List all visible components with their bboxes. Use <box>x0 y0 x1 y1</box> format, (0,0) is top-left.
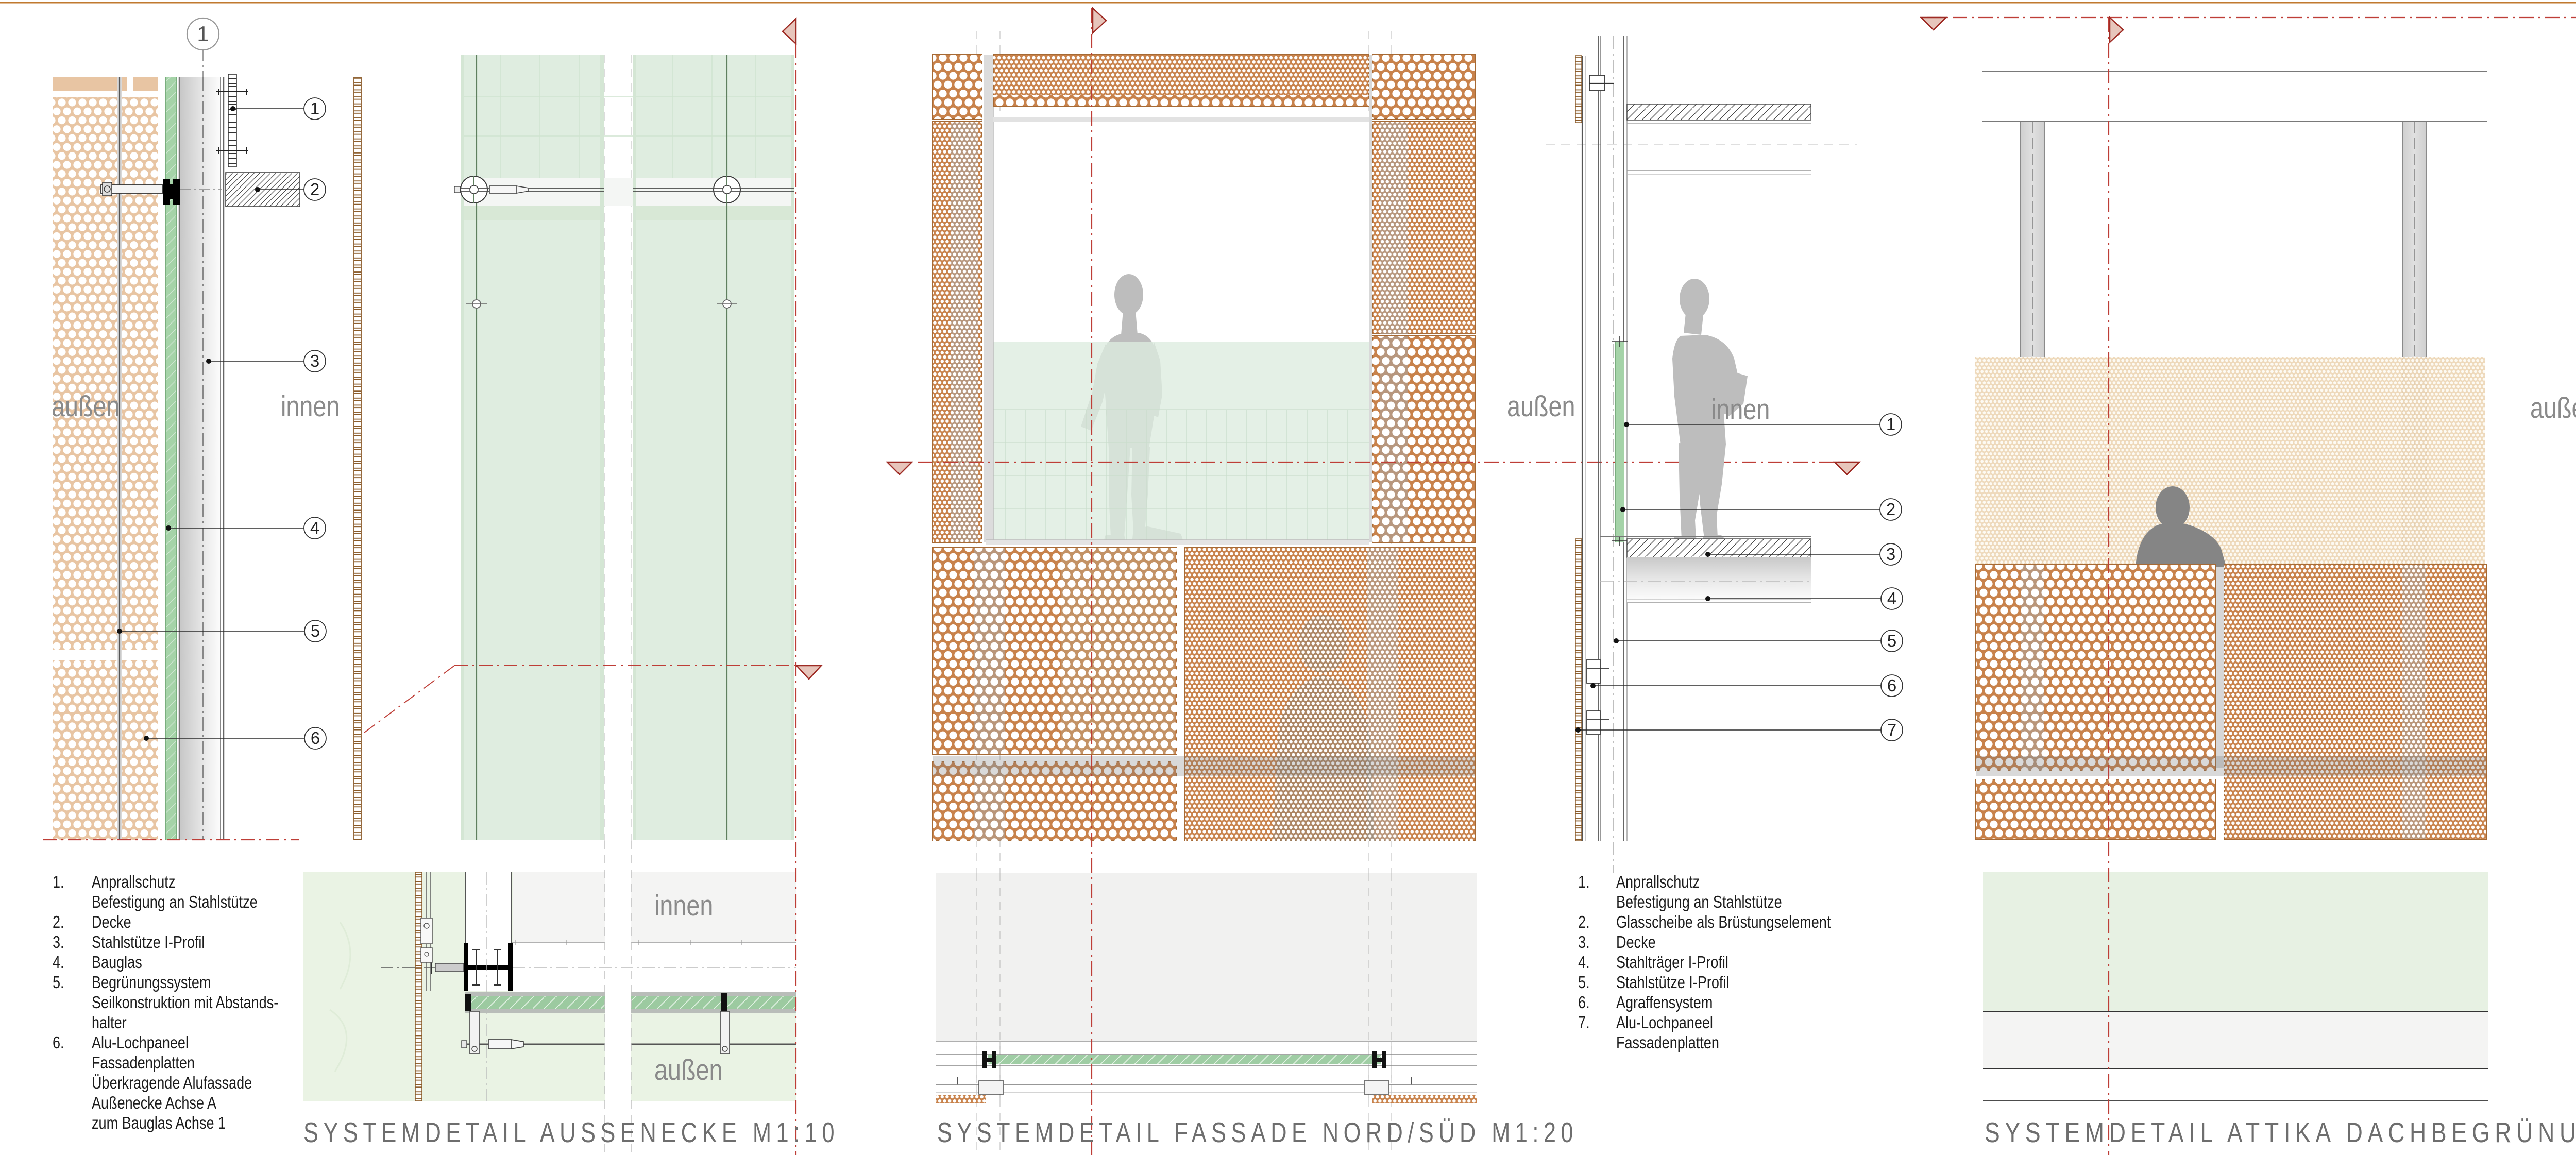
svg-text:innen: innen <box>281 390 340 423</box>
svg-text:4.: 4. <box>53 954 64 972</box>
svg-text:außen: außen <box>2530 392 2576 424</box>
svg-text:3: 3 <box>1886 545 1895 564</box>
svg-text:5.: 5. <box>53 974 64 992</box>
svg-text:1.: 1. <box>53 873 64 892</box>
svg-text:Alu-Lochpaneel: Alu-Lochpaneel <box>92 1034 189 1052</box>
svg-text:Fassadenplatten: Fassadenplatten <box>1616 1034 1719 1052</box>
svg-text:2.: 2. <box>53 913 64 932</box>
svg-text:außen: außen <box>654 1054 723 1086</box>
svg-text:6.: 6. <box>53 1034 64 1052</box>
svg-text:Alu-Lochpaneel: Alu-Lochpaneel <box>1616 1014 1713 1032</box>
svg-text:1: 1 <box>197 22 209 46</box>
svg-text:Stahlstütze I-Profil: Stahlstütze I-Profil <box>1616 974 1729 992</box>
svg-text:Stahlstütze I-Profil: Stahlstütze I-Profil <box>92 933 205 952</box>
svg-text:Fassadenplatten: Fassadenplatten <box>92 1054 195 1073</box>
svg-text:Glasscheibe als Brüstungseleme: Glasscheibe als Brüstungselement <box>1616 913 1831 932</box>
svg-text:2: 2 <box>1886 500 1895 519</box>
svg-text:Decke: Decke <box>92 913 131 932</box>
svg-text:Seilkonstruktion mit Abstands-: Seilkonstruktion mit Abstands- <box>92 994 278 1012</box>
svg-text:6: 6 <box>1887 676 1896 695</box>
svg-text:Agraffensystem: Agraffensystem <box>1616 994 1713 1012</box>
svg-text:Befestigung an Stahlstütze: Befestigung an Stahlstütze <box>92 893 258 912</box>
svg-text:zum Bauglas Achse 1: zum Bauglas Achse 1 <box>92 1114 226 1133</box>
svg-text:2.: 2. <box>1578 913 1590 932</box>
svg-text:Begrünungssystem: Begrünungssystem <box>92 974 211 992</box>
svg-text:4: 4 <box>1887 589 1896 608</box>
svg-text:SYSTEMDETAIL AUSSENECKE M1:10: SYSTEMDETAIL AUSSENECKE M1:10 <box>303 1116 839 1148</box>
svg-text:außen: außen <box>1507 390 1575 423</box>
svg-text:Bauglas: Bauglas <box>92 954 142 972</box>
svg-text:innen: innen <box>654 890 713 922</box>
svg-text:1.: 1. <box>1578 873 1590 892</box>
svg-text:1: 1 <box>1886 415 1895 434</box>
svg-text:4: 4 <box>310 518 319 537</box>
svg-text:innen: innen <box>1711 394 1770 426</box>
svg-text:SYSTEMDETAIL FASSADE NORD/SÜD: SYSTEMDETAIL FASSADE NORD/SÜD M1:20 <box>937 1116 1578 1148</box>
svg-text:6: 6 <box>311 728 320 748</box>
svg-text:4.: 4. <box>1578 954 1590 972</box>
svg-text:Außenecke Achse A: Außenecke Achse A <box>92 1094 217 1113</box>
svg-text:Anprallschutz: Anprallschutz <box>1616 873 1700 892</box>
svg-text:SYSTEMDETAIL ATTIKA DACHBEGRÜN: SYSTEMDETAIL ATTIKA DACHBEGRÜNUNG M1:20 <box>1985 1116 2576 1148</box>
svg-text:außen: außen <box>52 390 120 423</box>
svg-text:5: 5 <box>1887 631 1896 650</box>
svg-text:7.: 7. <box>1578 1014 1590 1032</box>
svg-text:2: 2 <box>310 180 319 199</box>
svg-text:3.: 3. <box>1578 933 1590 952</box>
svg-text:5: 5 <box>311 621 320 640</box>
svg-text:6.: 6. <box>1578 994 1590 1012</box>
svg-text:5.: 5. <box>1578 974 1590 992</box>
svg-text:halter: halter <box>92 1014 127 1032</box>
svg-text:Anprallschutz: Anprallschutz <box>92 873 175 892</box>
svg-text:3: 3 <box>310 351 319 370</box>
svg-text:Überkragende Alufassade: Überkragende Alufassade <box>92 1074 252 1093</box>
svg-text:1: 1 <box>310 99 319 118</box>
svg-text:3.: 3. <box>53 933 64 952</box>
svg-text:Befestigung an Stahlstütze: Befestigung an Stahlstütze <box>1616 893 1782 912</box>
svg-text:Decke: Decke <box>1616 933 1656 952</box>
svg-text:Stahlträger I-Profil: Stahlträger I-Profil <box>1616 954 1728 972</box>
svg-text:7: 7 <box>1887 720 1896 739</box>
